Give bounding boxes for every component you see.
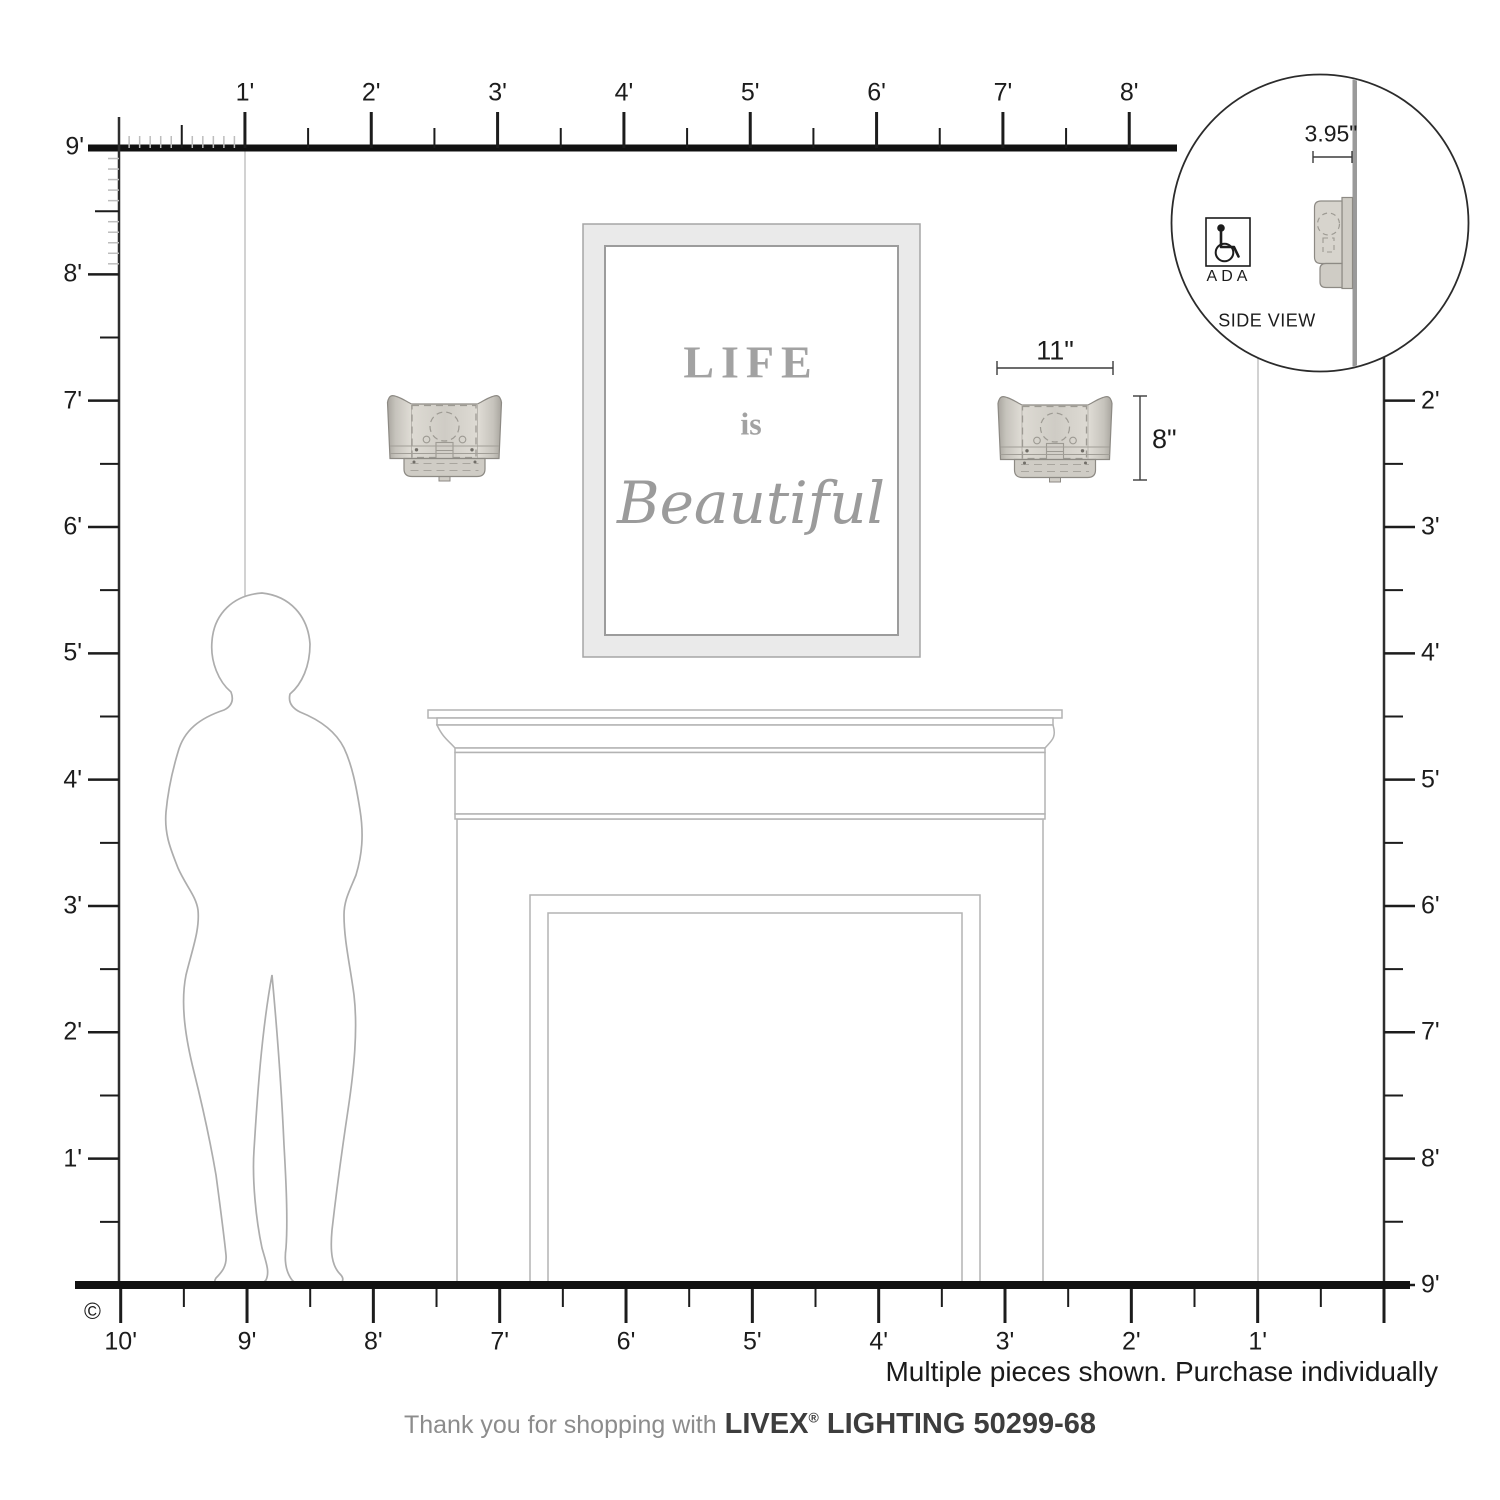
floor-ruler-line	[75, 1281, 1410, 1289]
ruler-label: 6'	[617, 1328, 636, 1357]
depth-dimension-label: 3.95"	[1305, 121, 1358, 148]
ceiling-ruler-line	[88, 145, 1177, 152]
art-text-beautiful: Beautiful	[617, 469, 885, 537]
ruler-label: 3'	[488, 79, 507, 108]
ruler-label: 3'	[63, 891, 82, 920]
ruler-label: 8'	[63, 260, 82, 289]
ruler-label: 8'	[364, 1328, 383, 1357]
ruler-label: 4'	[615, 79, 634, 108]
ruler-label: 2'	[63, 1018, 82, 1047]
ruler-label: 2'	[362, 79, 381, 108]
diagram-canvas: 1'2'3'4'5'6'7'8'9'8'7'6'5'4'3'2'1'2'3'4'…	[0, 0, 1500, 1500]
ruler-label: 4'	[63, 765, 82, 794]
ruler-label: 7'	[994, 79, 1013, 108]
ruler-label: 2'	[1421, 386, 1440, 415]
wall-line	[1353, 70, 1358, 376]
registered-mark: ®	[808, 1409, 818, 1425]
footer-brand: LIVEX® LIGHTING 50299-68	[725, 1408, 1096, 1441]
ruler-label: 8'	[1421, 1144, 1440, 1173]
ruler-label: 6'	[63, 512, 82, 541]
diagram-graphics	[0, 0, 1500, 1500]
ruler-label: 1'	[1248, 1328, 1267, 1357]
human-silhouette	[166, 593, 362, 1287]
ruler-label: 5'	[741, 79, 760, 108]
ruler-label: 5'	[743, 1328, 762, 1357]
art-text-is: is	[740, 406, 761, 443]
footer-thanks: Thank you for shopping with	[404, 1411, 717, 1440]
ruler-label: 4'	[869, 1328, 888, 1357]
ruler-label: 6'	[867, 79, 886, 108]
sconce-side-view	[1315, 198, 1353, 289]
footer: Thank you for shopping with LIVEX® LIGHT…	[0, 1408, 1500, 1441]
ruler-label: 2'	[1122, 1328, 1141, 1357]
width-dimension-label: 11"	[1036, 336, 1074, 367]
side-view-inset	[1172, 70, 1469, 376]
ruler-label: 10'	[104, 1328, 137, 1357]
ruler-label: 1'	[63, 1144, 82, 1173]
ada-label: ADA	[1207, 268, 1252, 286]
ruler-label: 7'	[490, 1328, 509, 1357]
ruler-label: 4'	[1421, 639, 1440, 668]
ruler-label: 7'	[1421, 1018, 1440, 1047]
ruler-label: 1'	[236, 79, 255, 108]
fireplace-drawing	[428, 710, 1062, 1285]
side-view-label: SIDE VIEW	[1218, 311, 1316, 332]
ruler-label: 5'	[63, 639, 82, 668]
ruler-label: 9'	[238, 1328, 257, 1357]
copyright-mark: ©	[84, 1298, 101, 1325]
sconce-left	[388, 396, 502, 481]
height-dimension-label: 8"	[1152, 424, 1177, 455]
ruler-label: 5'	[1421, 765, 1440, 794]
ruler-label: 9'	[65, 133, 84, 162]
ruler-label: 7'	[63, 386, 82, 415]
ruler-label: 6'	[1421, 891, 1440, 920]
ruler-label: 9'	[1421, 1270, 1440, 1299]
ruler-label: 3'	[996, 1328, 1015, 1357]
left-ruler-line	[118, 117, 121, 1285]
ruler-label: 8'	[1120, 79, 1139, 108]
sconce-right	[998, 397, 1112, 482]
purchase-note: Multiple pieces shown. Purchase individu…	[885, 1356, 1438, 1388]
art-text-life: LIFE	[683, 336, 818, 389]
ruler-label: 3'	[1421, 512, 1440, 541]
